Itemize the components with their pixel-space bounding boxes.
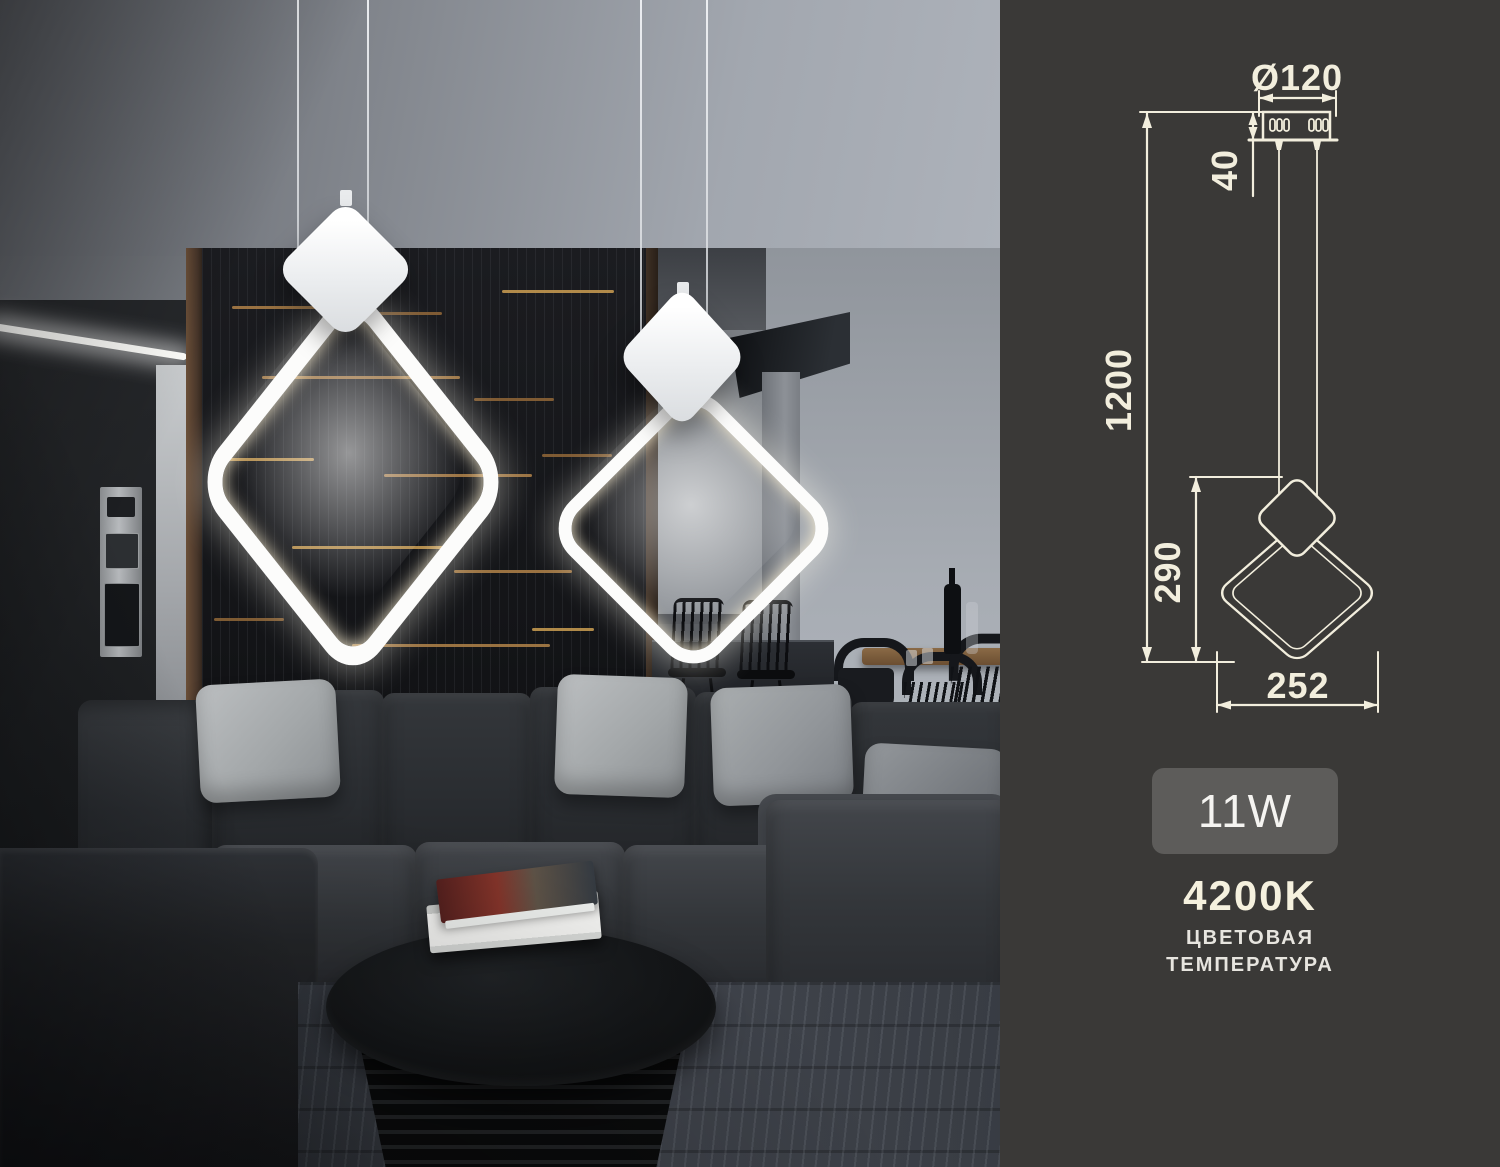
color-temperature-caption: ЦВЕТОВАЯ ТЕМПЕРАТУРА: [1000, 925, 1500, 979]
spec-panel: Ø120 40 1200 290 252 11W 4200K ЦВЕТОВАЯ …: [1000, 0, 1500, 1167]
built-in-appliances: [100, 487, 142, 657]
dim-suspension-length: 1200: [1098, 348, 1139, 432]
glass-bottle: [966, 602, 978, 654]
product-card: Ø120 40 1200 290 252 11W 4200K ЦВЕТОВАЯ …: [0, 0, 1500, 1167]
power-badge: 11W: [1152, 768, 1338, 854]
interior-photo: [0, 0, 1000, 1167]
drinking-glass: [906, 650, 917, 666]
pendant-wire: [640, 0, 642, 340]
dimension-diagram: Ø120 40 1200 290 252: [1000, 0, 1500, 730]
pendant-1-connector: [340, 190, 352, 206]
color-temperature-caption-line1: ЦВЕТОВАЯ: [1000, 925, 1500, 952]
accent-dash: [474, 398, 554, 401]
dim-diameter: Ø120: [1251, 57, 1343, 98]
dim-fixture-height: 290: [1147, 540, 1188, 603]
sofa-pillow: [195, 678, 341, 803]
accent-dash: [532, 628, 594, 631]
accent-dash: [502, 290, 614, 293]
dim-canopy-height: 40: [1204, 149, 1245, 191]
accent-dash: [542, 454, 612, 457]
ceiling: [0, 0, 1000, 258]
pendant-wire: [367, 0, 369, 226]
pendant-wire: [706, 0, 708, 318]
color-temperature-caption-line2: ТЕМПЕРАТУРА: [1000, 952, 1500, 979]
pendant-wire: [297, 0, 299, 250]
sofa-pillow: [554, 674, 688, 798]
accent-dash: [454, 570, 572, 573]
dim-fixture-width: 252: [1266, 665, 1329, 706]
ottoman: [0, 848, 318, 1167]
accent-dash: [214, 618, 284, 621]
power-badge-label: 11W: [1198, 784, 1292, 838]
color-temperature-value: 4200K: [1000, 872, 1500, 920]
drinking-glass: [922, 648, 933, 664]
bottle: [944, 584, 961, 654]
sofa-pillow: [710, 684, 854, 807]
coffee-table-top: [326, 928, 716, 1086]
